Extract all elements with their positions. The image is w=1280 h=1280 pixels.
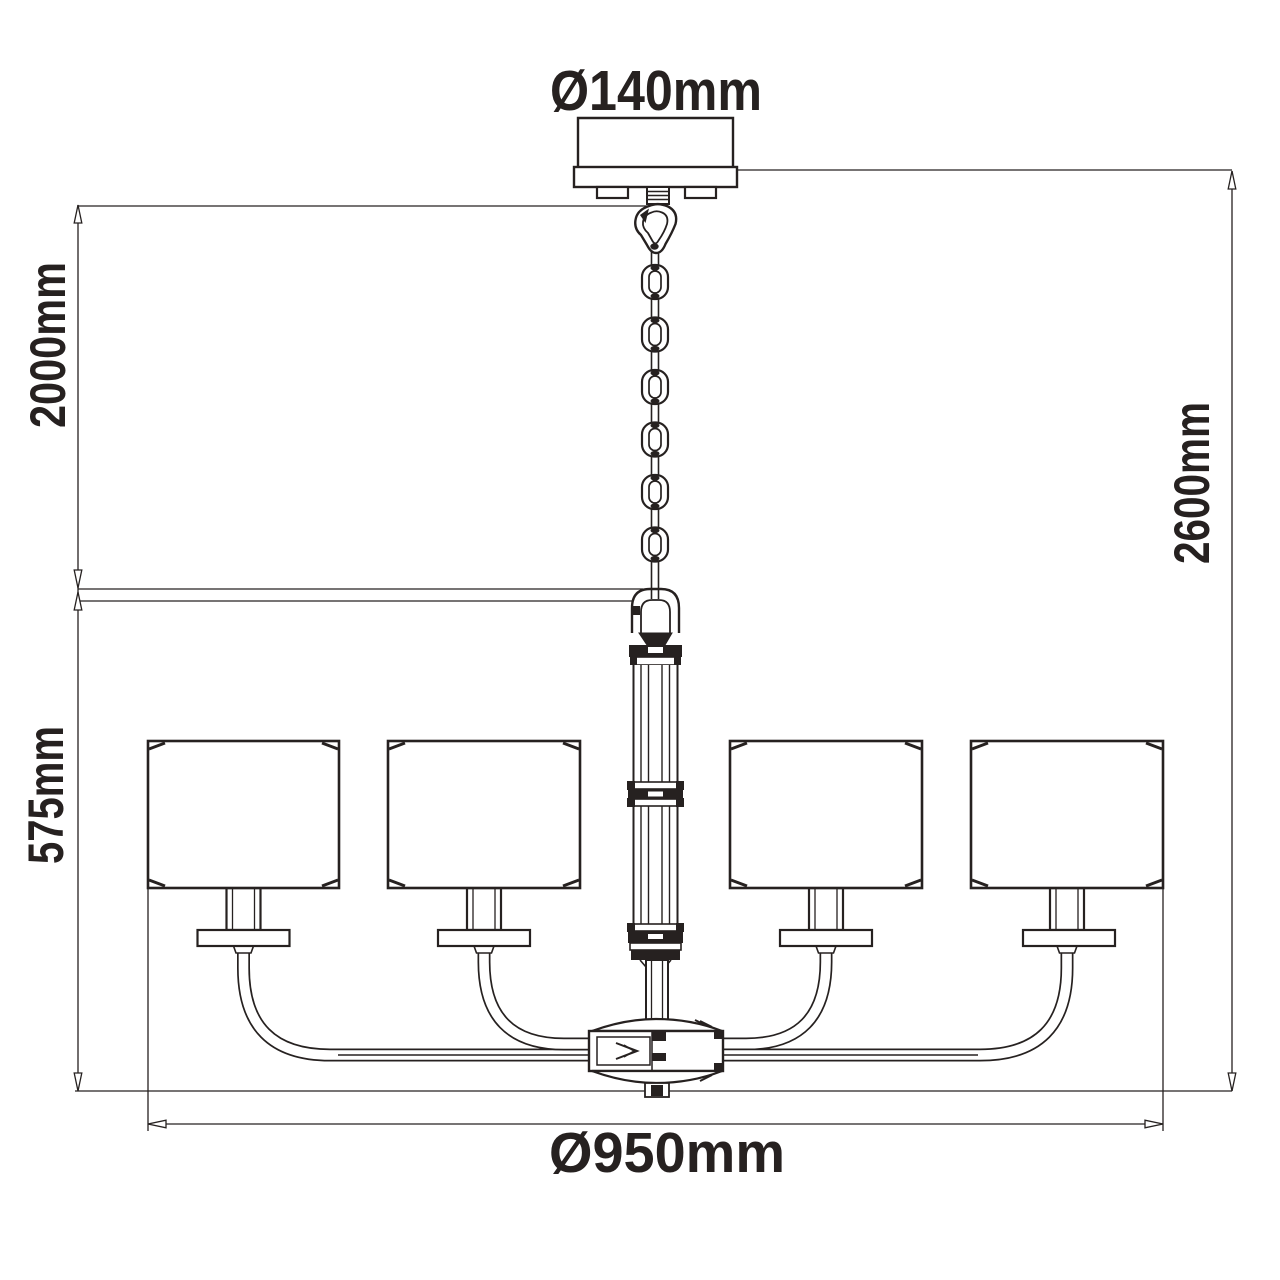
threaded-nipple xyxy=(647,187,669,204)
lamp-shade xyxy=(388,741,580,888)
lamp-shade xyxy=(730,741,922,888)
label-overall-height: 2600mm xyxy=(1164,402,1220,564)
dimension-labels: Ø140mm 2000mm 575mm 2600mm Ø950mm xyxy=(18,59,1220,1185)
chain-link xyxy=(642,265,668,299)
center-column xyxy=(627,589,684,1022)
candle-cup xyxy=(198,888,290,953)
arrow-down xyxy=(74,1073,82,1091)
label-chain-drop: 2000mm xyxy=(20,262,76,428)
column-collar-top xyxy=(629,645,682,665)
chain-link xyxy=(642,475,668,509)
lamp-shade xyxy=(148,741,339,888)
chain-link xyxy=(642,318,668,352)
label-body-height: 575mm xyxy=(18,726,74,864)
chain-link xyxy=(642,370,668,404)
mounting-tab xyxy=(597,187,628,198)
chain-link xyxy=(642,423,668,457)
chain-link xyxy=(642,528,668,562)
finial xyxy=(645,1083,669,1097)
technical-drawing-page: Ø140mm 2000mm 575mm 2600mm Ø950mm xyxy=(0,0,1280,1280)
arrow-up xyxy=(74,205,82,223)
arrow-right xyxy=(1145,1120,1163,1128)
arrow-left xyxy=(148,1120,166,1128)
label-body-diameter: Ø950mm xyxy=(549,1121,785,1185)
column-collar-middle xyxy=(627,781,684,807)
chandelier-dimension-drawing: Ø140mm 2000mm 575mm 2600mm Ø950mm xyxy=(0,0,1280,1280)
mounting-tab xyxy=(685,187,716,198)
ceiling-canopy xyxy=(574,118,737,204)
arrow-up xyxy=(1228,171,1236,189)
arrow-down xyxy=(1228,1073,1236,1091)
center-hub xyxy=(589,1019,723,1097)
column-top-loop xyxy=(632,589,679,645)
chain-links xyxy=(642,265,668,562)
arm-inner-left xyxy=(484,948,589,1044)
arm-inner-right xyxy=(723,948,826,1044)
hanging-chain xyxy=(635,204,676,599)
candle-cup xyxy=(438,888,530,953)
arrow-down xyxy=(74,570,82,588)
candle-cup xyxy=(1023,888,1115,953)
candle-cup xyxy=(780,888,872,953)
snap-hook xyxy=(635,204,676,253)
lamp-shade xyxy=(971,741,1163,888)
column-lower-stem xyxy=(646,960,668,1022)
label-canopy-diameter: Ø140mm xyxy=(550,59,762,123)
